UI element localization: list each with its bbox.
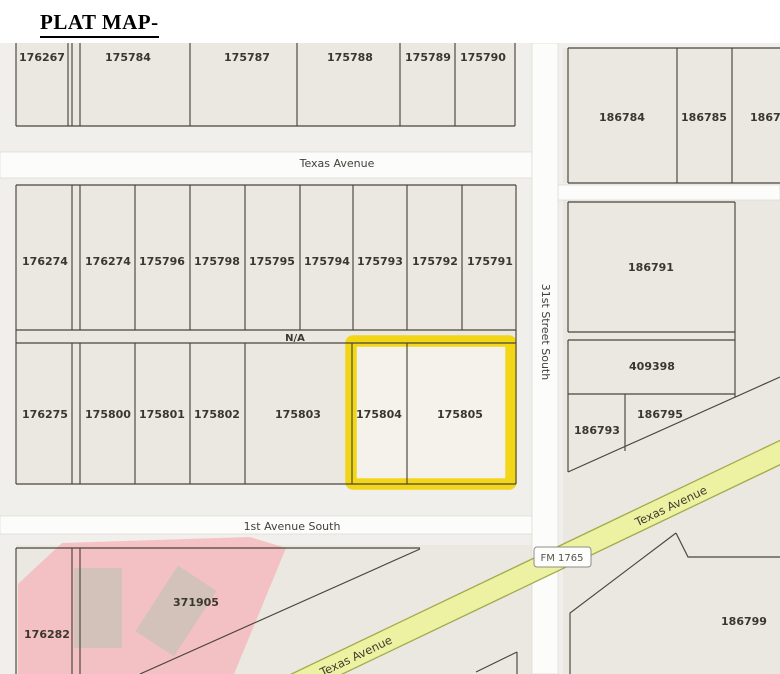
parcel-label-186786: 186786	[750, 111, 780, 124]
parcel-label-175787: 175787	[224, 51, 270, 64]
parcel-label-175805: 175805	[437, 408, 483, 421]
page-title: PLAT MAP-	[40, 10, 159, 38]
plat-map: FM 1765 Texas Avenue 1st Avenue South 31…	[0, 43, 780, 674]
parcel-label-186795: 186795	[637, 408, 683, 421]
fm1765-badge: FM 1765	[534, 547, 591, 567]
texas-avenue-road-east	[558, 185, 780, 200]
parcel-label-186793: 186793	[574, 424, 620, 437]
building-footprint	[74, 568, 122, 648]
block-top-right	[563, 48, 780, 183]
plat-map-page: PLAT MAP-	[0, 0, 780, 674]
parcel-label-175788: 175788	[327, 51, 373, 64]
fm1765-badge-label: FM 1765	[540, 553, 583, 564]
street-label-31st-street-south: 31st Street South	[539, 284, 552, 380]
parcel-label-175784: 175784	[105, 51, 151, 64]
parcel-label-176274: 176274	[85, 255, 131, 268]
na-strip-label: N/A	[285, 333, 305, 344]
parcel-label-176267: 176267	[19, 51, 65, 64]
parcel-label-175789: 175789	[405, 51, 451, 64]
parcel-label-371905: 371905	[173, 596, 219, 609]
street-label-first-avenue-south: 1st Avenue South	[244, 520, 341, 533]
parcel-label-175798: 175798	[194, 255, 240, 268]
texas-avenue-road-west	[0, 152, 532, 178]
parcel-label-175801: 175801	[139, 408, 185, 421]
parcel-label-175792: 175792	[412, 255, 458, 268]
street-label-texas-avenue: Texas Avenue	[299, 157, 375, 170]
parcel-label-186791: 186791	[628, 261, 674, 274]
parcel-label-186785: 186785	[681, 111, 727, 124]
parcel-label-176275: 176275	[22, 408, 68, 421]
parcel-label-176274-west: 176274	[22, 255, 68, 268]
parcel-label-176282: 176282	[24, 628, 70, 641]
parcel-label-175800: 175800	[85, 408, 131, 421]
parcel-label-175790: 175790	[460, 51, 506, 64]
parcel-label-175793: 175793	[357, 255, 403, 268]
parcel-label-175791: 175791	[467, 255, 513, 268]
parcel-label-175804: 175804	[356, 408, 402, 421]
parcel-label-175794: 175794	[304, 255, 350, 268]
parcel-label-175795: 175795	[249, 255, 295, 268]
parcel-label-175802: 175802	[194, 408, 240, 421]
parcel-label-186784: 186784	[599, 111, 645, 124]
parcel-label-409398: 409398	[629, 360, 675, 373]
parcel-label-186799: 186799	[721, 615, 767, 628]
parcel-label-175796: 175796	[139, 255, 185, 268]
parcel-label-175803: 175803	[275, 408, 321, 421]
